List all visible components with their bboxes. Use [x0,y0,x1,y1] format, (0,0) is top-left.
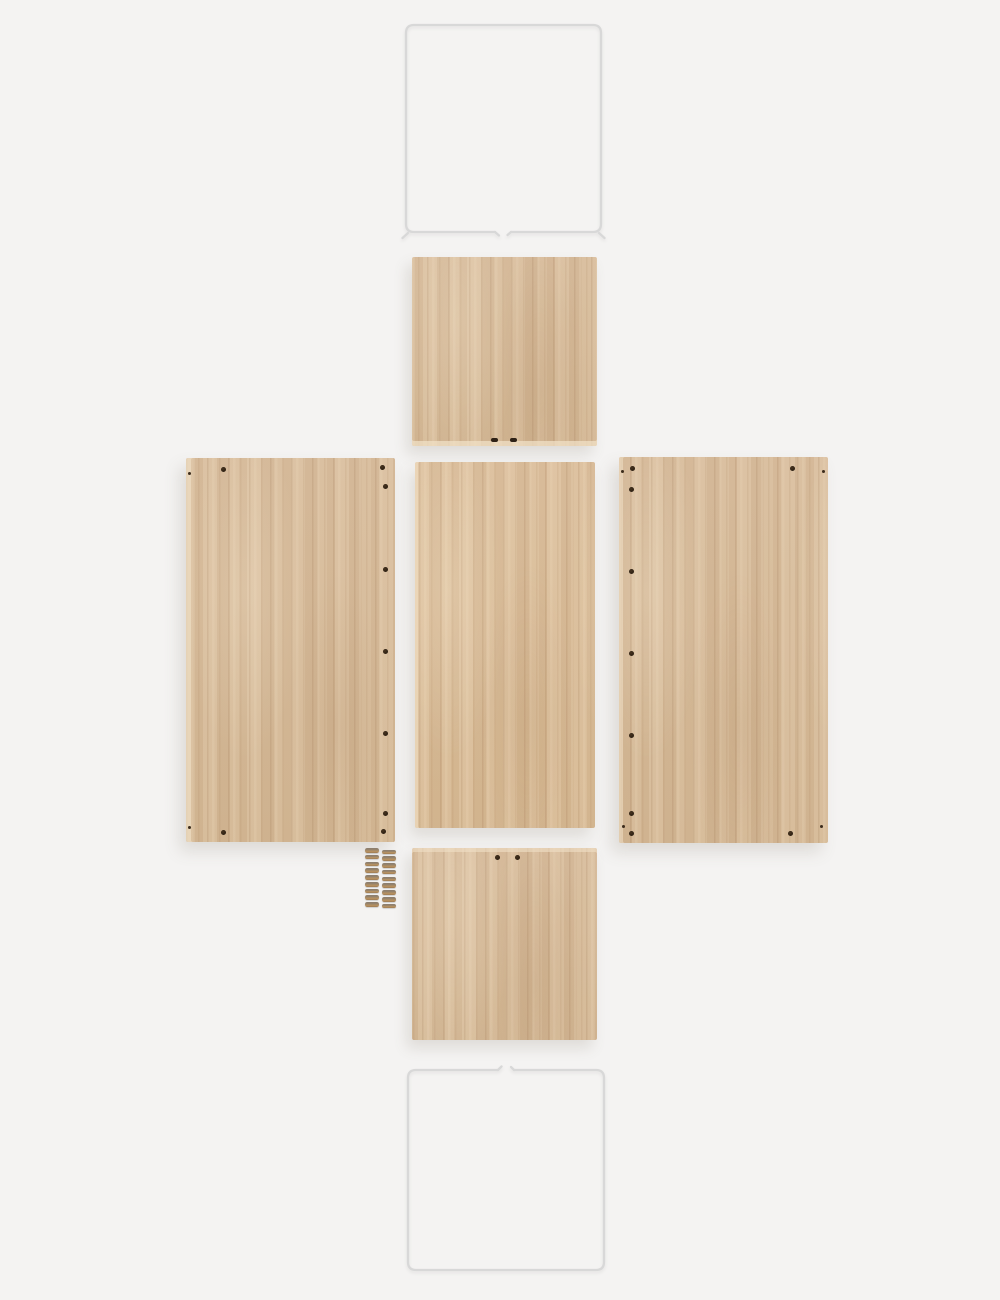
drill-hole [383,811,388,816]
drill-hole [495,855,500,860]
drill-hole [822,470,825,473]
drill-hole [790,466,795,471]
drill-hole [221,830,226,835]
wire-frame-top [399,21,608,239]
product-photo [0,0,1000,1300]
screw [365,855,379,860]
screw [382,897,396,902]
oak-panel-top [412,257,597,446]
drill-hole [188,472,191,475]
drill-hole [510,438,517,442]
drill-hole [820,825,823,828]
wire-frame-bottom [401,1064,611,1276]
drill-hole [621,470,624,473]
screw [382,904,396,909]
screw [365,889,379,894]
screw [382,870,396,875]
drill-hole [629,651,634,656]
wire-frame-foot [498,1067,502,1071]
drill-hole [629,569,634,574]
screw [382,890,396,895]
oak-panel-right [619,457,828,843]
drill-hole [380,465,385,470]
drill-hole [788,831,793,836]
screw [365,862,379,867]
screw [365,868,379,873]
oak-panel-bottom [412,848,597,1040]
screw [365,848,379,853]
drill-hole [491,438,498,442]
drill-hole [188,826,191,829]
screw [365,875,379,880]
drill-hole [629,831,634,836]
drill-hole [629,811,634,816]
drill-hole [383,567,388,572]
drill-hole [383,731,388,736]
screw [382,850,396,855]
screw-column [365,848,379,908]
wire-frame-outline [406,25,601,232]
screw [365,895,379,900]
screw [382,883,396,888]
oak-panel-left [186,458,395,842]
wire-frame-foot [599,233,605,238]
screw [382,877,396,882]
screw [365,882,379,887]
drill-hole [629,733,634,738]
screw-stacks [365,848,396,908]
wire-frame-foot [403,233,409,238]
drill-hole [515,855,520,860]
drill-hole [629,487,634,492]
wire-frame-foot [508,232,512,235]
drill-hole [383,649,388,654]
screw [365,902,379,907]
drill-hole [221,467,226,472]
wire-frame-foot [511,1067,514,1070]
screw-column [382,850,396,909]
screw [382,863,396,868]
screw [382,856,396,861]
wire-frame-foot [495,232,499,236]
drill-hole [383,484,388,489]
wire-frame-outline [408,1070,604,1270]
drill-hole [381,829,386,834]
drill-hole [630,466,635,471]
drill-hole [622,825,625,828]
oak-panel-middle [415,462,595,828]
